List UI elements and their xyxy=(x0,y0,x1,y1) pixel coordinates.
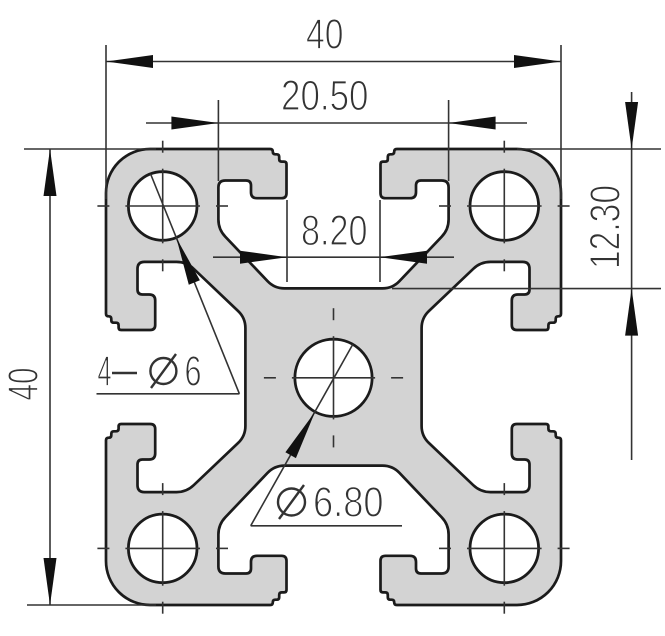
svg-text:8.20: 8.20 xyxy=(301,207,368,255)
svg-text:6: 6 xyxy=(185,348,202,396)
svg-text:40: 40 xyxy=(306,11,344,59)
svg-text:20.50: 20.50 xyxy=(281,72,369,120)
svg-text:4: 4 xyxy=(98,348,112,396)
svg-text:40: 40 xyxy=(0,368,48,401)
svg-text:6.80: 6.80 xyxy=(313,479,384,527)
svg-text:12.30: 12.30 xyxy=(582,185,630,269)
